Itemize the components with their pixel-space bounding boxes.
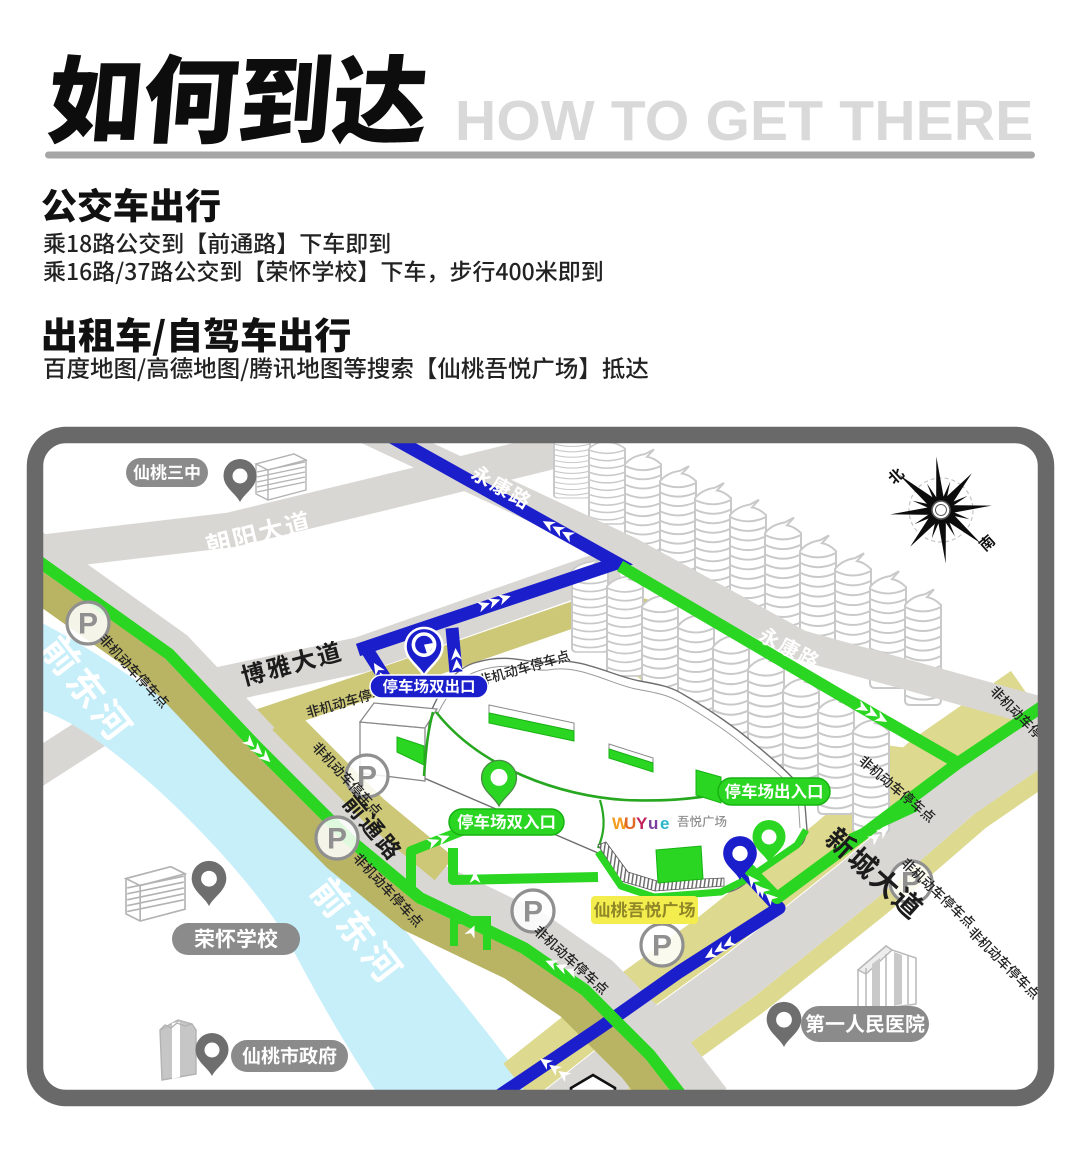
svg-text:u: u (648, 814, 658, 833)
svg-text:e: e (660, 814, 669, 833)
svg-text:HOW TO GET THERE: HOW TO GET THERE (455, 89, 1034, 153)
svg-text:U: U (624, 814, 636, 833)
svg-text:Y: Y (636, 814, 648, 833)
